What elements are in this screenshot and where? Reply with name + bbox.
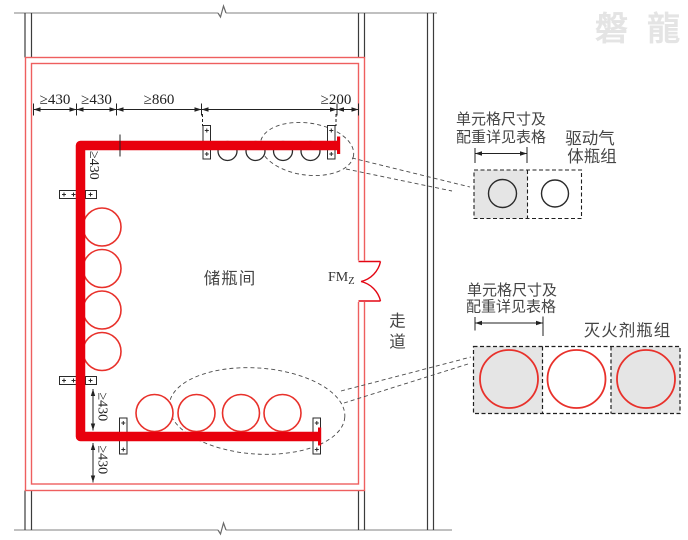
driving-gas-leader-2 xyxy=(346,169,452,191)
agent-bottles-left-column xyxy=(83,208,121,371)
agent-bottles-bottom-row xyxy=(136,395,301,432)
cell-note-line1: 单元格尺寸及 xyxy=(456,111,546,128)
cell-note-line2: 配重详见表格 xyxy=(456,129,546,146)
pipe-end-cap-bottom xyxy=(318,428,321,446)
driving-gas-detail: 单元格尺寸及 配重详见表格 驱动气 体瓶组 xyxy=(456,111,617,219)
cell-note-line1: 单元格尺寸及 xyxy=(467,282,557,299)
agent-cell-shaded xyxy=(611,347,680,414)
agent-bottle xyxy=(178,395,215,432)
agent-detail-bottle xyxy=(548,350,606,408)
top-break-symbol xyxy=(218,6,226,17)
agent-bottle xyxy=(264,395,301,432)
agent-leader-2 xyxy=(344,364,468,403)
bottom-break-symbol xyxy=(218,523,226,534)
dim-top-3: ≥860 xyxy=(144,92,175,108)
agent-bottle xyxy=(136,395,173,432)
agent-label: 灭火剂瓶组 xyxy=(584,321,672,340)
fire-door-subscript: Z xyxy=(348,276,354,287)
agent-bottle xyxy=(83,250,121,288)
manifold-pipe xyxy=(81,135,341,446)
cell-note-line2: 配重详见表格 xyxy=(466,299,556,316)
pipe-end-cap-top xyxy=(337,137,340,155)
driving-gas-label-line1: 驱动气 xyxy=(565,129,615,148)
dim-bottom-left-upper: ≥430 xyxy=(95,393,110,422)
dim-top-1: ≥430 xyxy=(40,92,71,108)
driving-gas-cell-dimension xyxy=(475,147,527,163)
floor-plan-drawing: 磐 龍 xyxy=(0,0,688,540)
driving-gas-label-line2: 体瓶组 xyxy=(567,147,617,166)
agent-cell-dividers xyxy=(543,347,612,414)
agent-bottle xyxy=(83,208,121,246)
driving-gas-detail-bottle xyxy=(542,180,569,207)
dim-bottom-left-lower: ≥430 xyxy=(95,446,110,475)
corridor-label-char2: 道 xyxy=(389,333,406,352)
fire-door-code: FM xyxy=(328,270,349,285)
dim-left-upper: ≥430 xyxy=(86,151,101,180)
agent-bottle xyxy=(83,333,121,371)
corridor-right-wall xyxy=(428,13,434,530)
dim-top-4: ≥200 xyxy=(321,92,352,108)
corridor-label-char1: 走 xyxy=(389,312,406,331)
floor-plan-page: 磐 龍 xyxy=(0,0,688,540)
agent-bottle xyxy=(223,395,260,432)
driving-gas-cell-shaded xyxy=(474,170,528,219)
watermark-logo: 磐 龍 xyxy=(595,10,685,47)
agent-leader-1 xyxy=(341,357,471,391)
dim-top-2: ≥430 xyxy=(81,92,112,108)
manifold-pipe-run xyxy=(81,146,338,437)
agent-detail: 单元格尺寸及 配重详见表格 灭火剂瓶组 xyxy=(466,282,680,414)
room-label: 储瓶间 xyxy=(204,269,257,288)
agent-bottle xyxy=(83,291,121,329)
fire-door-label: FMZ xyxy=(328,270,355,287)
agent-cell-dimension xyxy=(475,317,543,337)
agent-cell-shaded xyxy=(474,347,543,414)
